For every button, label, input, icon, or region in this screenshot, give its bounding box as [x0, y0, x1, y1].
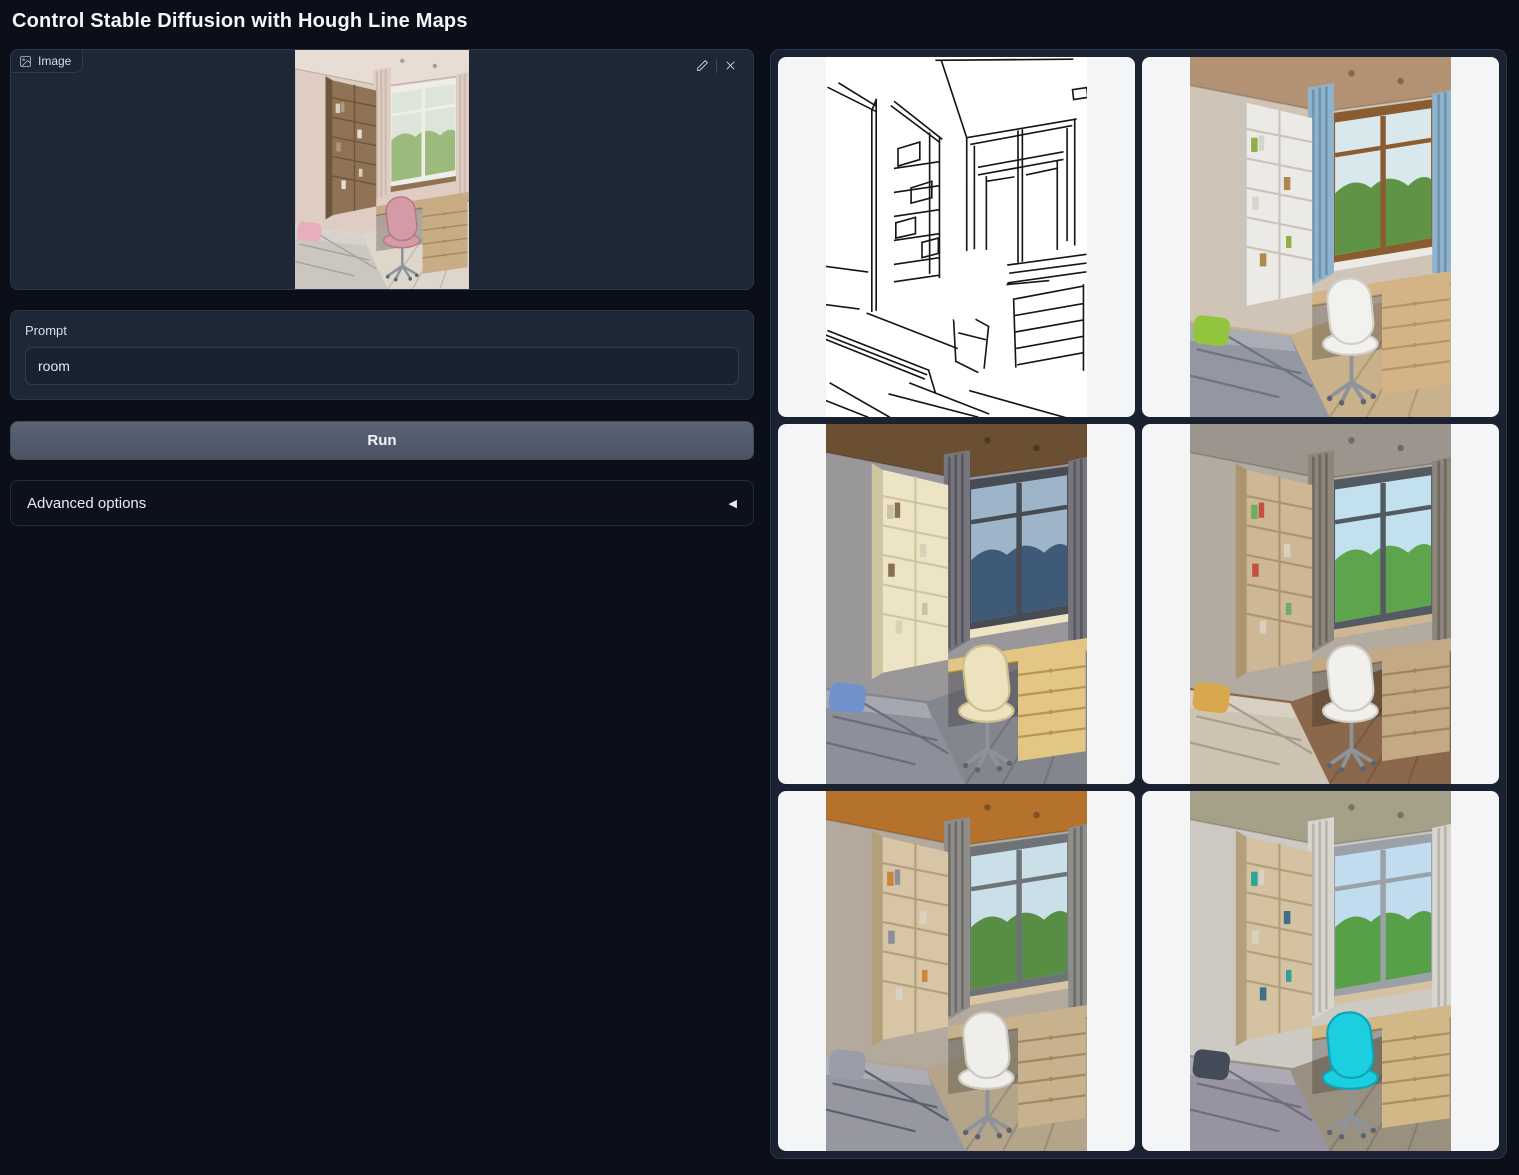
controls-column: Image	[10, 49, 754, 526]
gallery-item-4[interactable]	[778, 791, 1135, 1151]
output-gallery	[770, 49, 1507, 1159]
prompt-input[interactable]	[25, 347, 739, 385]
image-actions	[689, 57, 744, 74]
generated-room-image-2	[826, 424, 1088, 784]
page-title: Control Stable Diffusion with Hough Line…	[12, 10, 1509, 33]
image-input-panel: Image	[10, 49, 754, 290]
prompt-panel: Prompt	[10, 310, 754, 400]
input-image[interactable]	[291, 50, 473, 289]
output-column	[770, 49, 1507, 1159]
pencil-icon	[696, 59, 709, 72]
clear-image-button[interactable]	[717, 57, 744, 74]
advanced-options-label: Advanced options	[27, 495, 146, 512]
prompt-label: Prompt	[25, 323, 739, 338]
edit-image-button[interactable]	[689, 57, 716, 74]
image-icon	[19, 55, 32, 68]
image-input-label-text: Image	[38, 54, 71, 68]
generated-room-image-5	[1190, 791, 1452, 1151]
gallery-item-5[interactable]	[1142, 791, 1499, 1151]
collapse-arrow-icon: ◀	[729, 497, 737, 510]
gallery-item-3[interactable]	[1142, 424, 1499, 784]
gallery-item-1[interactable]	[1142, 57, 1499, 417]
generated-room-image-4	[826, 791, 1088, 1151]
gallery-item-hough-map[interactable]	[778, 57, 1135, 417]
close-icon	[724, 59, 737, 72]
app: Control Stable Diffusion with Hough Line…	[0, 0, 1519, 1159]
input-image-picture	[291, 50, 473, 289]
image-input-label: Image	[11, 50, 83, 73]
advanced-options-accordion[interactable]: Advanced options ◀	[10, 480, 754, 526]
generated-room-image-1	[1190, 57, 1452, 417]
generated-room-image-3	[1190, 424, 1452, 784]
run-button[interactable]: Run	[10, 421, 754, 460]
hough-line-map-image	[826, 57, 1088, 417]
gallery-item-2[interactable]	[778, 424, 1135, 784]
